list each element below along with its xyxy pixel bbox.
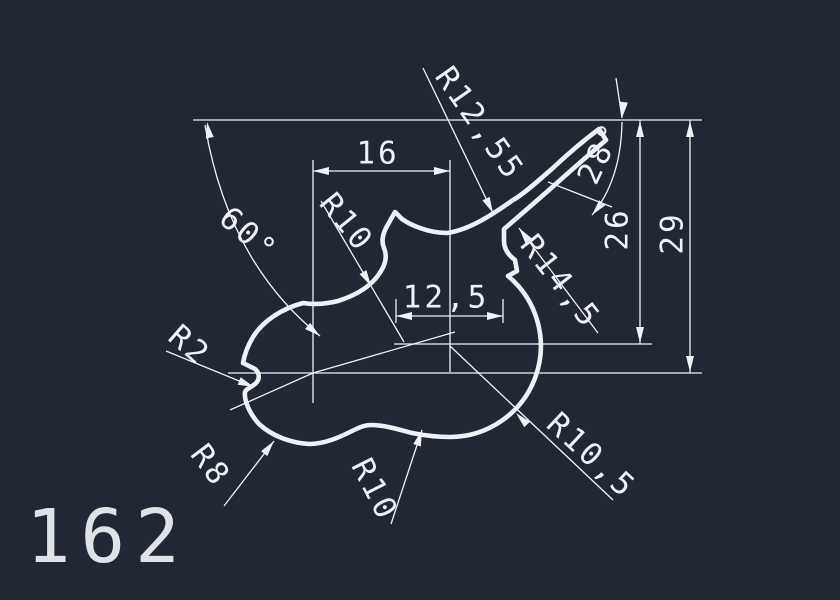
cad-viewport[interactable]: 16R10R12,5528°2629R14,512,560°R2R8R10R10… xyxy=(0,0,840,600)
dim-28deg-upper-tick[interactable] xyxy=(616,78,622,118)
arrowhead-9 xyxy=(686,356,694,372)
arrowhead-2 xyxy=(313,167,329,175)
leader-r12-55[interactable] xyxy=(423,68,493,213)
leader-r10-5[interactable] xyxy=(450,346,613,500)
arrowhead-7 xyxy=(636,327,644,343)
arrowhead-5 xyxy=(487,312,503,320)
extension-lines[interactable] xyxy=(193,120,702,410)
arrowhead-6 xyxy=(636,121,644,137)
arrowhead-8 xyxy=(686,121,694,137)
profile-outline[interactable] xyxy=(243,129,606,444)
arrowhead-12 xyxy=(516,226,532,244)
arrowhead-16 xyxy=(261,439,277,457)
dimension-lines[interactable] xyxy=(166,68,690,524)
arrowhead-4 xyxy=(396,312,412,320)
dimension-arrowheads xyxy=(203,102,694,456)
part-number-label[interactable]: 162 xyxy=(26,500,190,574)
leader-r14-5[interactable] xyxy=(519,228,598,333)
arrowhead-0 xyxy=(203,121,214,138)
arrowhead-3 xyxy=(434,167,450,175)
